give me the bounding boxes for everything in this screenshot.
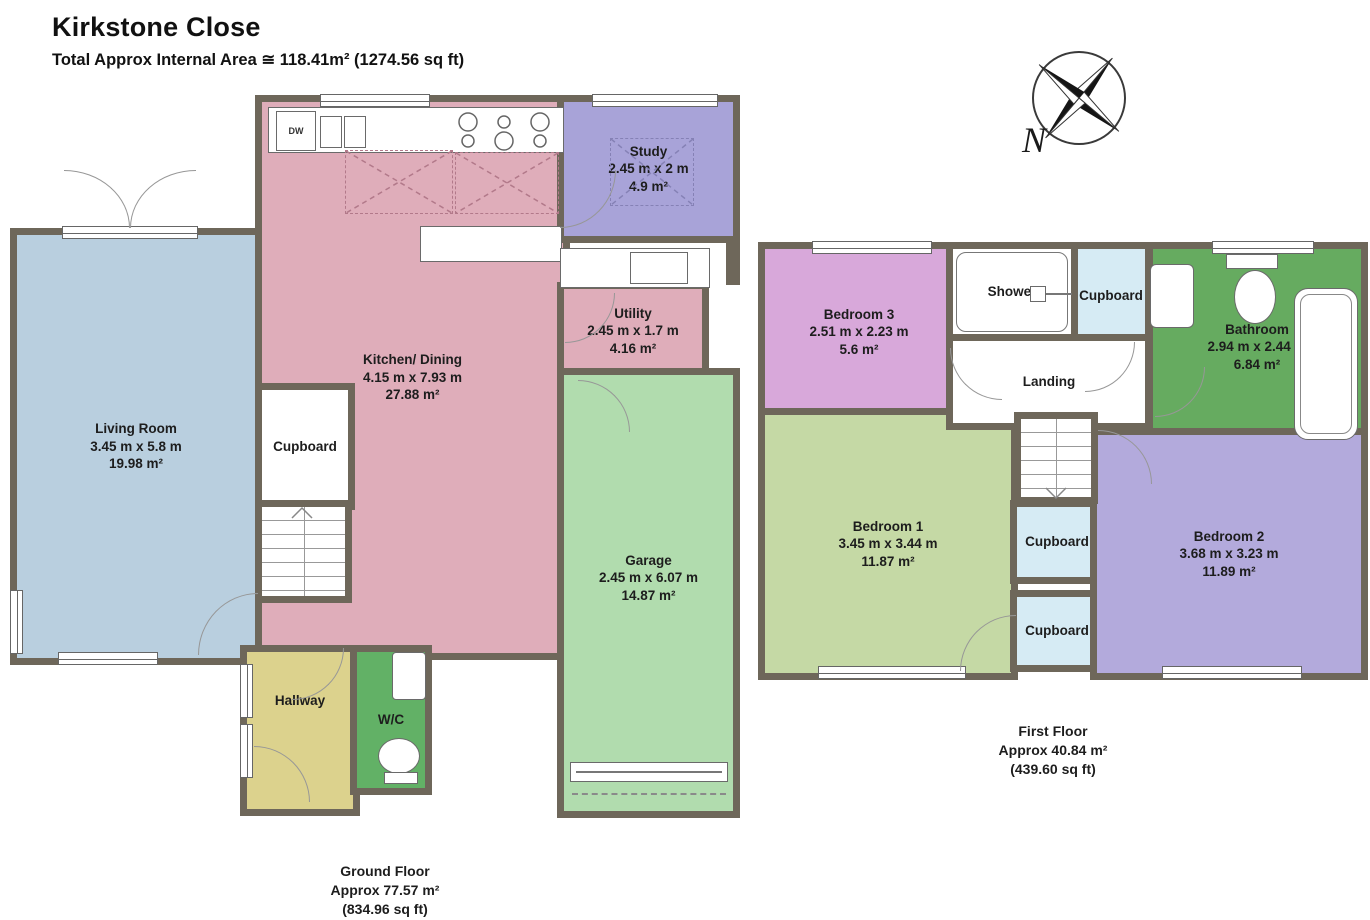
cupboard-bottom-label: Cupboard [1025,622,1089,640]
ground-floor-caption: Ground Floor Approx 77.57 m² (834.96 sq … [285,862,485,919]
cupboard-mid-label: Cupboard [1025,533,1089,551]
kitchen-unit-dashed [345,150,453,214]
room-garage: Garage 2.45 m x 6.07 m 14.87 m² [557,368,740,818]
stairs-down-arrow-icon [1044,486,1068,500]
living-room-label: Living Room 3.45 m x 5.8 m 19.98 m² [90,420,182,473]
study-desk-dashed [610,138,694,206]
wc-sink-icon [392,652,426,700]
window [812,241,932,254]
room-cupboard-top: Cupboard [1070,242,1152,349]
room-living-room: Living Room 3.45 m x 5.8 m 19.98 m² [10,228,262,665]
toilet-cistern-icon [1226,254,1278,269]
bathroom-sink-icon [1150,264,1194,328]
dishwasher-icon: DW [276,111,316,151]
wc-label: W/C [378,711,404,729]
cupboard-top-label: Cupboard [1079,287,1143,305]
window [240,724,253,778]
first-floor-caption: First Floor Approx 40.84 m² (439.60 sq f… [950,722,1156,779]
window [1162,666,1302,679]
floorplan-page: Kirkstone Close Total Approx Internal Ar… [0,0,1370,920]
garage-door-line [576,771,722,773]
window [320,94,430,107]
compass-icon: N [1018,36,1140,158]
bedroom3-label: Bedroom 3 2.51 m x 2.23 m 5.6 m² [809,306,908,359]
window [58,652,158,665]
page-title: Kirkstone Close [52,12,261,43]
kitchen-island [420,226,562,262]
french-door-arc [130,170,196,228]
stairs-up-arrow-icon [290,506,314,520]
window [240,664,253,718]
garage-door-dashed-line [572,793,726,795]
room-bedroom-3: Bedroom 3 2.51 m x 2.23 m 5.6 m² [758,242,960,422]
wall-stub [726,243,740,285]
window [818,666,966,679]
french-door-arc [64,170,130,228]
window [592,94,718,107]
landing-label: Landing [1023,373,1076,391]
bathroom-label: Bathroom 2.94 m x 2.44 m 6.84 m² [1207,321,1306,374]
bedroom1-label: Bedroom 1 3.45 m x 3.44 m 11.87 m² [838,518,937,571]
total-area-subtitle: Total Approx Internal Area ≅ 118.41m² (1… [52,50,464,70]
toilet-icon [1234,270,1276,324]
window [10,590,23,654]
utility-sink-icon [630,252,688,284]
room-cupboard-ground: Cupboard [255,383,355,510]
room-shower: Shower [946,242,1078,342]
compass-north-label: N [1021,120,1048,158]
bathtub-icon [1294,288,1358,440]
garage-label: Garage 2.45 m x 6.07 m 14.87 m² [599,552,698,605]
toilet-icon [378,738,420,774]
hob-icon [452,110,556,152]
kitchen-dining-label: Kitchen/ Dining 4.15 m x 7.93 m 27.88 m² [363,351,462,404]
kitchen-sink-icon [320,116,342,148]
cupboard-ground-label: Cupboard [273,438,337,456]
kitchen-unit-dashed [455,152,559,214]
shower-head-icon [1030,286,1046,302]
kitchen-sink-icon [344,116,366,148]
window [1212,241,1314,254]
shower-arm-line [1046,293,1072,295]
bedroom2-label: Bedroom 2 3.68 m x 3.23 m 11.89 m² [1179,528,1278,581]
toilet-cistern-icon [384,772,418,784]
